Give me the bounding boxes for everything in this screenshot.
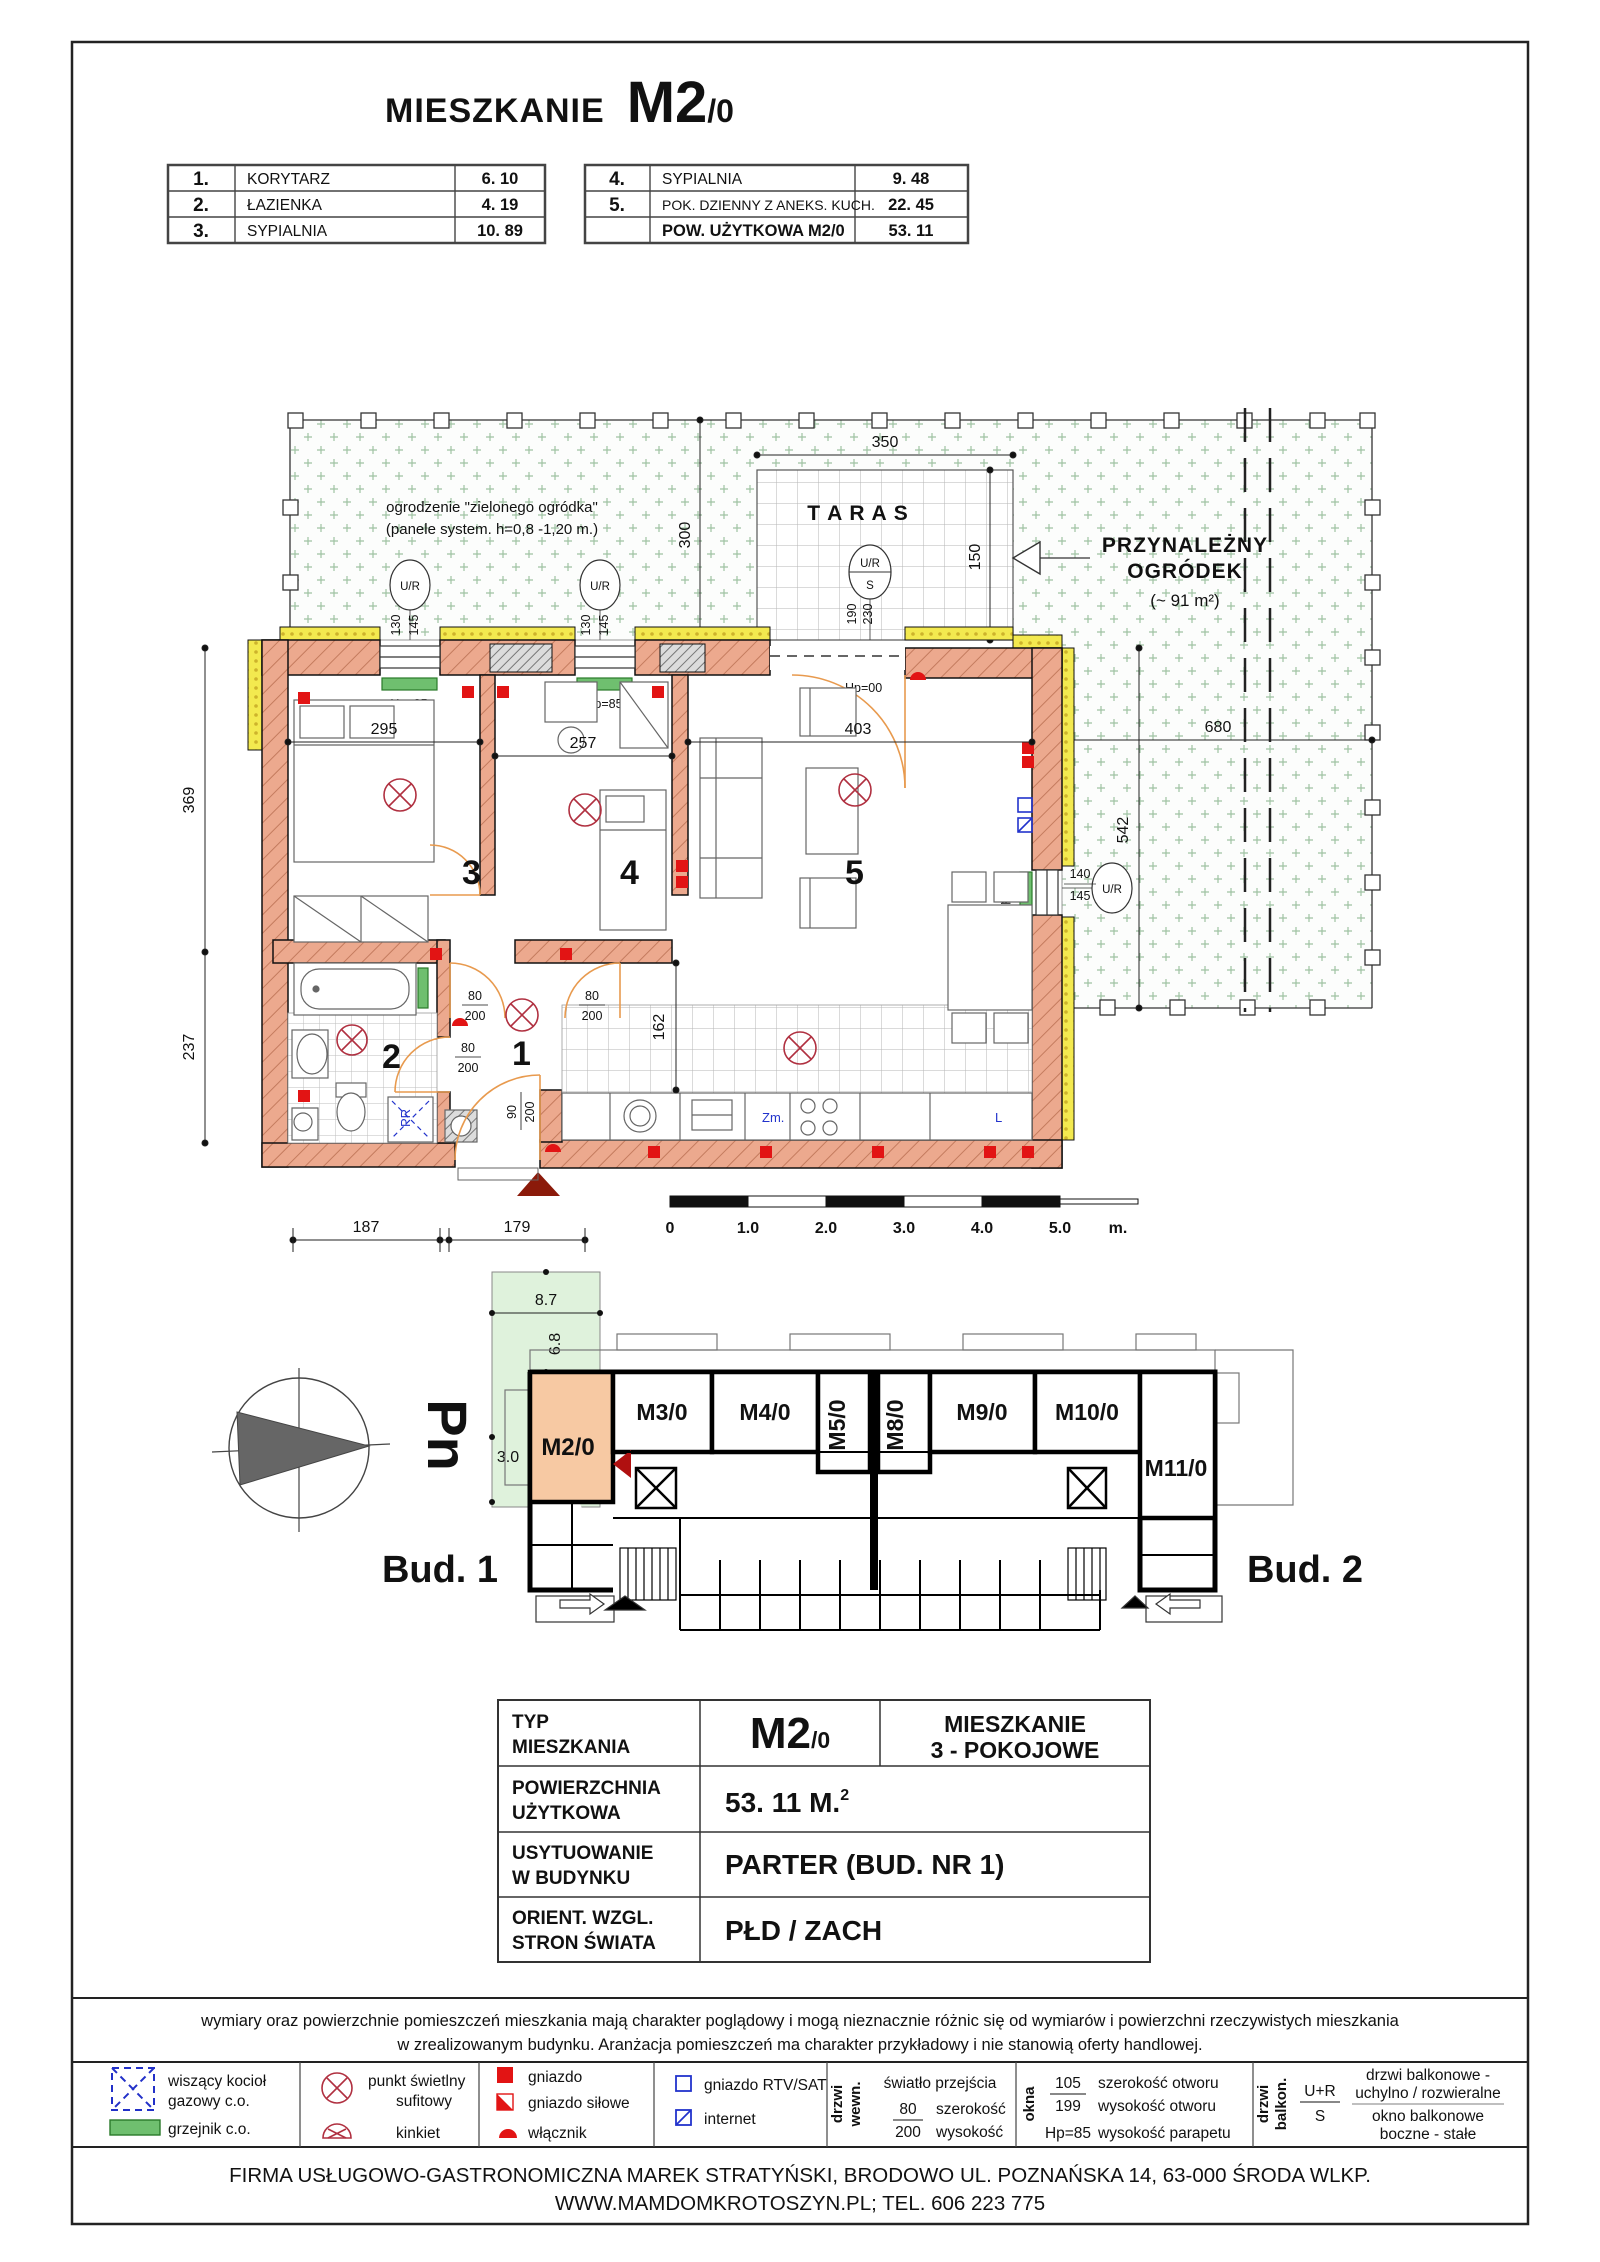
svg-text:S: S [866, 580, 874, 592]
building1-label: Bud. 1 [382, 1549, 498, 1591]
svg-text:200: 200 [582, 1009, 603, 1023]
switch-icon [499, 2129, 517, 2138]
disclaimer: wymiary oraz powierzchnie pomieszczeń mi… [72, 1998, 1528, 2062]
svg-text:MIESZKANIEM2/0: MIESZKANIEM2/0 [385, 70, 734, 135]
entry-threshold [458, 1168, 538, 1180]
row-name: SYPIALNIA [247, 223, 328, 240]
compass-north-label: Pn [416, 1399, 479, 1471]
taras-door-h: 230 [861, 604, 875, 625]
garden-area-label: (~ 91 m²) [1150, 591, 1219, 610]
svg-text:145: 145 [597, 615, 611, 636]
svg-text:130: 130 [579, 615, 593, 636]
power-socket-icon [497, 2094, 513, 2110]
socket-icon [497, 2067, 513, 2083]
svg-text:145: 145 [1070, 889, 1091, 903]
svg-text:kinkiet: kinkiet [396, 2125, 441, 2142]
washer-label: PR [398, 1109, 413, 1127]
room4-furniture [545, 682, 668, 930]
row-name: POK. DZIENNY Z ANEKS. KUCH. [662, 197, 875, 213]
svg-text:U/R: U/R [1102, 884, 1122, 896]
row-no: 4. [609, 169, 625, 190]
scale-bar [670, 1196, 1138, 1207]
svg-text:200: 200 [458, 1061, 479, 1075]
row-area: 4. 19 [482, 196, 519, 214]
row-name: SYPIALNIA [662, 171, 743, 188]
dim-295: 295 [371, 721, 398, 738]
dim-150: 150 [967, 544, 984, 571]
garden-label-1: PRZYNALEŻNY [1102, 534, 1268, 557]
row-name: KORYTARZ [247, 171, 330, 188]
legend-door-balk-1: drzwi [1255, 2085, 1272, 2123]
svg-text:szerokość: szerokość [936, 2101, 1006, 2118]
svg-text:53. 11 M.2: 53. 11 M.2 [725, 1787, 849, 1818]
svg-text:sufitowy: sufitowy [396, 2093, 452, 2110]
room3-furniture [294, 700, 434, 942]
svg-text:U/R: U/R [400, 581, 420, 593]
rtv-internet-sockets [1018, 798, 1032, 832]
building2-label: Bud. 2 [1247, 1549, 1363, 1591]
ceiling-light-icon [322, 2073, 352, 2103]
row-no: 3. [193, 221, 209, 242]
legend: wiszący kocioł gazowy c.o. grzejnik c.o.… [72, 2062, 1528, 2147]
room5-label: 5 [845, 854, 864, 892]
svg-text:ORIENT. WZGL.: ORIENT. WZGL. [512, 1908, 653, 1929]
svg-text:punkt świetlny: punkt świetlny [368, 2073, 466, 2090]
footer-company: FIRMA USŁUGOWO-GASTRONOMICZNA MAREK STRA… [229, 2163, 1371, 2187]
room1-label: 1 [512, 1035, 531, 1073]
svg-text:200: 200 [465, 1009, 486, 1023]
site-unit-m3: M3/0 [636, 1399, 687, 1425]
info-orientation-value: PŁD / ZACH [725, 1915, 882, 1946]
sink-label: Zm. [762, 1110, 784, 1125]
site-unit-m8: M8/0 [882, 1399, 908, 1450]
site-plan: 8.7 6.8 3.0 M2/0 M3/0 M4/0 M5/0 M8/0 M9/… [212, 1269, 1363, 1630]
boiler-icon [112, 2068, 154, 2110]
room3-label: 3 [462, 854, 481, 892]
svg-text:5.0: 5.0 [1049, 1220, 1071, 1237]
info-area-value: 53. 11 M. [725, 1787, 840, 1818]
title-text: MIESZKANIE [385, 92, 605, 130]
garden-label-2: OGRÓDEK [1127, 559, 1243, 583]
compass: Pn [212, 1368, 479, 1532]
window-room4 [575, 646, 635, 668]
svg-text:wysokość parapetu: wysokość parapetu [1097, 2125, 1231, 2142]
fence-note-1: ogrodzenie "zielonego ogródka" [386, 499, 598, 516]
svg-text:wysokość: wysokość [935, 2124, 1003, 2141]
legend-door-balk-2: balkon. [1273, 2078, 1290, 2131]
footer-contact: WWW.MAMDOMKROTOSZYN.PL; TEL. 606 223 775 [555, 2192, 1045, 2215]
dim-403: 403 [845, 721, 872, 738]
svg-text:m.: m. [1109, 1220, 1128, 1237]
svg-text:boczne - stałe: boczne - stałe [1380, 2126, 1477, 2143]
taras-label: T A R A S [807, 502, 909, 525]
site-unit-m10: M10/0 [1055, 1399, 1119, 1425]
window-room5-side [1036, 870, 1058, 915]
room4-label: 4 [620, 854, 639, 892]
svg-text:140: 140 [1070, 867, 1091, 881]
total-area: 53. 11 [889, 222, 934, 240]
svg-text:TYP: TYP [512, 1712, 549, 1733]
room2-label: 2 [382, 1038, 401, 1076]
dim-350: 350 [872, 434, 899, 451]
dim-257: 257 [570, 735, 597, 752]
svg-text:gazowy c.o.: gazowy c.o. [168, 2093, 250, 2110]
disclaimer-line1: wymiary oraz powierzchnie pomieszczeń mi… [200, 2012, 1399, 2030]
dim-680: 680 [1205, 719, 1232, 736]
site-unit-m11: M11/0 [1145, 1455, 1208, 1481]
taras-door-w: 190 [845, 604, 859, 625]
dim-369: 369 [181, 787, 198, 814]
legend-door-int-1: drzwi [829, 2085, 846, 2123]
scale-labels: 0 1.0 2.0 3.0 4.0 5.0 m. [666, 1220, 1128, 1237]
row-name: ŁAZIENKA [247, 197, 323, 214]
legend-windows: okna [1021, 2086, 1038, 2122]
site-unit-m5: M5/0 [824, 1399, 850, 1450]
row-no: 5. [609, 195, 625, 216]
dim-187: 187 [353, 1219, 380, 1236]
svg-text:gniazdo: gniazdo [528, 2069, 582, 2086]
svg-text:drzwi balkonowe -: drzwi balkonowe - [1366, 2067, 1490, 2084]
row-no: 2. [193, 195, 209, 216]
sconce-icon [323, 2124, 351, 2138]
fence-note-2: (panele system. h=0,8 -1,20 m.) [386, 521, 598, 538]
summary-table-left: 1. KORYTARZ 6. 10 2. ŁAZIENKA 4. 19 3. S… [168, 165, 545, 243]
rtv-icon [676, 2076, 691, 2091]
svg-text:gniazdo siłowe: gniazdo siłowe [528, 2095, 630, 2112]
svg-text:POWIERZCHNIA: POWIERZCHNIA [512, 1778, 661, 1799]
svg-text:gniazdo RTV/SAT: gniazdo RTV/SAT [704, 2077, 827, 2094]
svg-text:200: 200 [523, 1102, 537, 1123]
svg-text:włącznik: włącznik [527, 2125, 587, 2142]
svg-text:0: 0 [666, 1220, 675, 1237]
svg-text:2.0: 2.0 [815, 1220, 837, 1237]
site-unit-m9: M9/0 [956, 1399, 1007, 1425]
radiator-icon [110, 2120, 160, 2135]
svg-text:80: 80 [461, 1041, 475, 1055]
fridge-label: L [995, 1110, 1002, 1125]
window-room3 [380, 646, 440, 668]
svg-text:grzejnik c.o.: grzejnik c.o. [168, 2121, 251, 2138]
svg-text:UŻYTKOWA: UŻYTKOWA [512, 1803, 621, 1824]
svg-text:U+R: U+R [1304, 2083, 1335, 2100]
dim-162: 162 [651, 1014, 668, 1041]
disclaimer-line2: w zrealizowanym budynku. Aranżacja pomie… [396, 2036, 1202, 2054]
svg-text:S: S [1315, 2108, 1325, 2125]
dim-179: 179 [504, 1219, 531, 1236]
row-area: 22. 45 [888, 196, 934, 214]
svg-text:105: 105 [1055, 2075, 1081, 2092]
svg-text:okno balkonowe: okno balkonowe [1372, 2108, 1484, 2125]
title-code: M2 [627, 70, 708, 135]
row-area: 10. 89 [477, 222, 523, 240]
svg-text:wysokość otworu: wysokość otworu [1097, 2098, 1216, 2115]
svg-text:80: 80 [468, 989, 482, 1003]
svg-text:uchylno / rozwieralne: uchylno / rozwieralne [1355, 2085, 1501, 2102]
total-label: POW. UŻYTKOWA M2/0 [662, 222, 845, 240]
page-title: MIESZKANIEM2/0 [385, 70, 734, 135]
svg-text:90: 90 [505, 1105, 519, 1119]
room5-furniture [700, 688, 1032, 1043]
svg-text:80: 80 [899, 2101, 917, 2118]
info-type-code: M2 [750, 1709, 811, 1758]
site-dim-68: 6.8 [547, 1333, 564, 1355]
title-floor: /0 [707, 93, 734, 129]
svg-text:MIESZKANIE: MIESZKANIE [944, 1711, 1086, 1737]
dim-542: 542 [1115, 817, 1132, 844]
row-no: 1. [193, 169, 209, 190]
svg-text:Hp=85: Hp=85 [1045, 2125, 1091, 2142]
dim-300: 300 [677, 522, 694, 549]
site-dim-30: 3.0 [497, 1449, 519, 1466]
svg-text:wiszący kocioł: wiszący kocioł [167, 2073, 267, 2090]
svg-text:4.0: 4.0 [971, 1220, 993, 1237]
internet-icon [676, 2110, 691, 2125]
svg-text:U/R: U/R [590, 581, 610, 593]
site-unit-m4: M4/0 [739, 1399, 790, 1425]
svg-text:3.0: 3.0 [893, 1220, 915, 1237]
info-table: TYP MIESZKANIA M2/0 MIESZKANIE 3 - POKOJ… [498, 1700, 1150, 1962]
svg-text:145: 145 [407, 615, 421, 636]
svg-text:USYTUOWANIE: USYTUOWANIE [512, 1843, 653, 1864]
svg-text:200: 200 [895, 2124, 921, 2141]
row-area: 9. 48 [893, 170, 930, 188]
svg-text:STRON ŚWIATA: STRON ŚWIATA [512, 1932, 656, 1954]
svg-text:szerokość otworu: szerokość otworu [1098, 2075, 1219, 2092]
legend-door-int-2: wewn. [847, 2081, 864, 2127]
svg-text:199: 199 [1055, 2098, 1081, 2115]
svg-text:1.0: 1.0 [737, 1220, 759, 1237]
dim-237: 237 [181, 1034, 198, 1061]
svg-text:W BUDYNKU: W BUDYNKU [512, 1868, 630, 1889]
svg-text:światło przejścia: światło przejścia [884, 2075, 997, 2092]
footer: FIRMA USŁUGOWO-GASTRONOMICZNA MAREK STRA… [229, 2163, 1371, 2215]
floorplan-document: MIESZKANIEM2/0 1. KORYTARZ 6. 10 2. ŁAZI… [0, 0, 1600, 2262]
site-unit-m2: M2/0 [541, 1434, 594, 1461]
row-area: 6. 10 [482, 170, 519, 188]
svg-text:130: 130 [389, 615, 403, 636]
svg-text:U/R: U/R [860, 558, 880, 570]
summary-table-right: 4. SYPIALNIA 9. 48 5. POK. DZIENNY Z ANE… [585, 165, 968, 243]
site-dim-87: 8.7 [535, 1292, 557, 1309]
kitchen-counter [562, 1093, 1032, 1140]
svg-text:internet: internet [704, 2111, 756, 2128]
svg-text:80: 80 [585, 989, 599, 1003]
svg-text:MIESZKANIA: MIESZKANIA [512, 1737, 631, 1758]
info-location-value: PARTER (BUD. NR 1) [725, 1849, 1004, 1880]
svg-text:3 - POKOJOWE: 3 - POKOJOWE [931, 1737, 1100, 1763]
